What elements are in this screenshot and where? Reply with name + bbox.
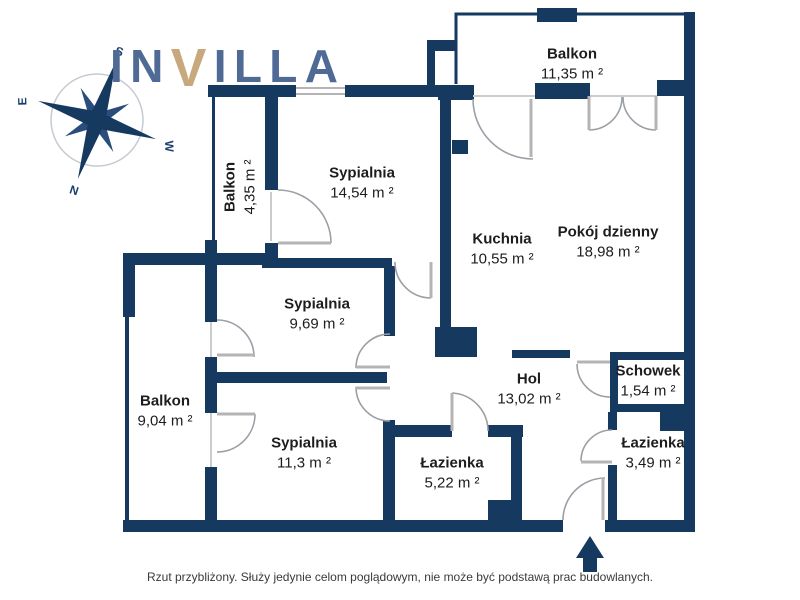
compass-label-e: E [15, 97, 29, 105]
door-hol-to-sypialnia3 [356, 387, 390, 421]
floorplan-page: S W N E [0, 0, 800, 600]
room-label-balkon-top: Balkon 11,35 m ² [541, 45, 603, 84]
room-label-balkon-lower: Balkon 9,04 m ² [137, 392, 192, 431]
room-label-sypialnia-3: Sypialnia 11,3 m ² [271, 434, 337, 473]
door-hol-to-kuchnia [395, 262, 431, 298]
room-label-pokoj-dzienny: Pokój dzienny 18,98 m ² [558, 223, 659, 262]
logo-accent-v: V [171, 39, 214, 98]
door-balkon-to-sypialnia2 [217, 320, 254, 357]
compass-label-n: N [68, 182, 81, 198]
french-door-balkon-to-pokoj [589, 96, 656, 130]
room-label-lazienka-mala: Łazienka 3,49 m ² [621, 434, 684, 473]
logo-text-post: ILLA [214, 40, 346, 92]
room-label-kuchnia: Kuchnia 10,55 m ² [470, 230, 533, 269]
entrance-arrow-icon [576, 536, 604, 572]
door-hol-to-sypialnia2 [356, 334, 390, 368]
room-label-hol: Hol 13,02 m ² [497, 370, 560, 409]
disclaimer-text: Rzut przybliżony. Służy jedynie celom po… [0, 570, 800, 584]
room-label-sypialnia-2: Sypialnia 9,69 m ² [284, 295, 350, 334]
compass-label-w: W [162, 140, 176, 152]
door-hol-to-schowek [577, 362, 610, 397]
room-label-balkon-left: Balkon 4,35 m ² [221, 159, 260, 214]
door-hol-to-lazienka-mala [581, 430, 612, 462]
room-label-schowek: Schowek 1,54 m ² [615, 362, 680, 401]
logo-text-pre: IN [110, 40, 171, 92]
door-hol-to-lazienka-duza [452, 393, 488, 431]
entrance-door [563, 478, 605, 520]
door-balkon-to-sypialnia3 [217, 414, 255, 452]
room-label-sypialnia-1: Sypialnia 14,54 m ² [329, 164, 395, 203]
door-balkon-to-kuchnia [473, 99, 533, 159]
room-label-lazienka-duza: Łazienka 5,22 m ² [420, 454, 483, 493]
invilla-logo: INVILLA [110, 42, 345, 95]
door-balkon-to-sypialnia1 [278, 190, 331, 243]
